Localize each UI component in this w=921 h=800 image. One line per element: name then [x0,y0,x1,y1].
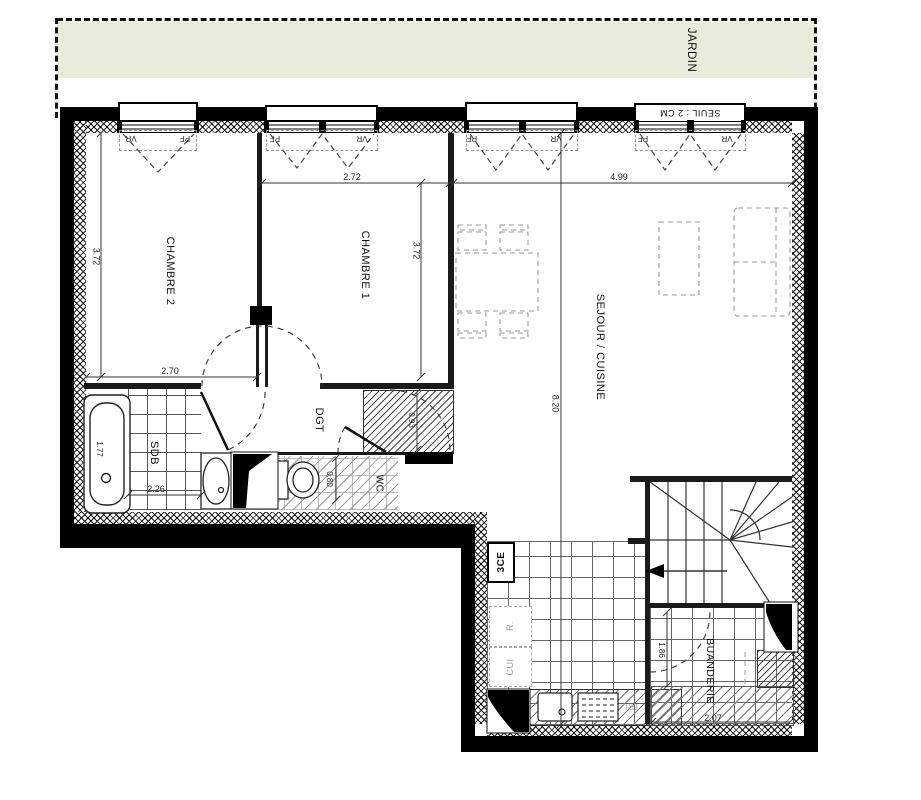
dim-sejour-width: 4.99 [604,171,634,182]
duct-label-3ce: 3CE [495,547,507,577]
dim-chambre1-width: 2.72 [337,171,367,182]
room-label-buanderie: BUANDERIE [703,631,717,711]
dim-chambre2-width: 2.70 [155,365,185,376]
room-label-wc: WC [373,471,386,497]
dim-buanderie-width: 2.07 [698,712,728,723]
tri-label: TRI [622,701,642,713]
kitchen-entry-door [487,689,530,733]
dimension-lines [82,129,796,728]
sofa [734,208,790,316]
hall-entry-door [231,452,278,509]
dim-shaft-width: 0.93 [407,406,417,434]
kitchen-unit-label: CUI [504,654,516,680]
dim-buanderie-height: 1.86 [657,636,667,664]
dim-bathtub-length: 1.77 [95,435,105,463]
window-swing-lines [123,134,741,172]
dim-sdb-width: 2.26 [141,483,171,494]
kitchen-sink-icon [538,693,572,721]
toilet-icon [277,461,319,499]
door-leaves [201,392,386,452]
room-label-sdb: SDB [147,436,161,470]
stair-direction-arrow [646,564,664,578]
room-label-chambre1: CHAMBRE 1 [358,222,372,308]
room-label-chambre2: CHAMBRE 2 [163,228,177,314]
room-label-dgt: DGT [312,403,326,437]
plan-linework [0,0,921,800]
dimension-ticks [82,129,796,728]
coffee-table [659,222,699,295]
floor-plan: JARDIN SEUIL : 2 CM VR PF PF VR PF VR PF… [0,0,921,800]
dim-sejour-height: 8.20 [551,389,562,419]
fridge-label: R. [504,616,516,636]
staircase [650,482,792,603]
dim-chambre2-height: 3.72 [92,242,103,272]
bathtub-icon [84,395,130,513]
washbasin-icon [201,453,232,509]
dim-wc-depth: 0.80 [325,465,335,493]
dim-chambre1-height: 3.72 [412,236,423,266]
hob-icon [578,693,618,721]
dining-set [456,225,538,338]
room-label-sejour-cuisine: SEJOUR / CUISINE [593,291,607,403]
stair-bottom-door [764,602,798,652]
